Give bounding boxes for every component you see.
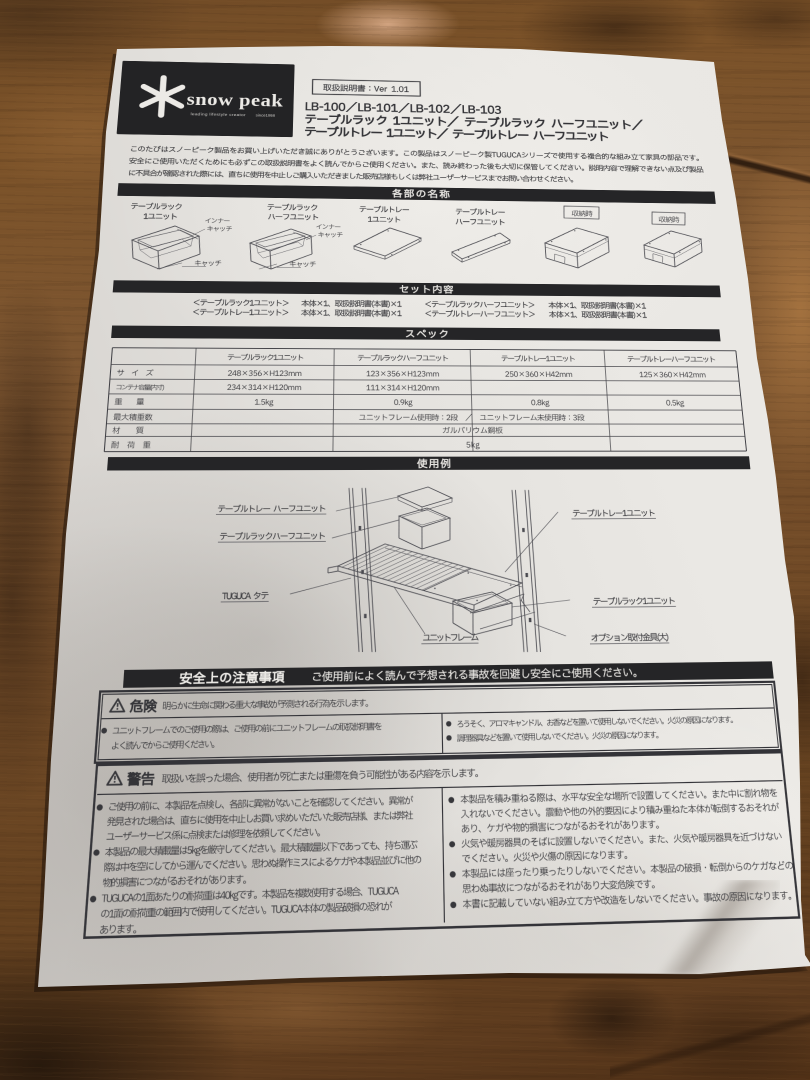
svg-text:leading lifestyle creator: leading lifestyle creator: [190, 111, 246, 117]
svg-text:since1958: since1958: [256, 114, 275, 118]
svg-text:snow peak: snow peak: [186, 90, 283, 111]
